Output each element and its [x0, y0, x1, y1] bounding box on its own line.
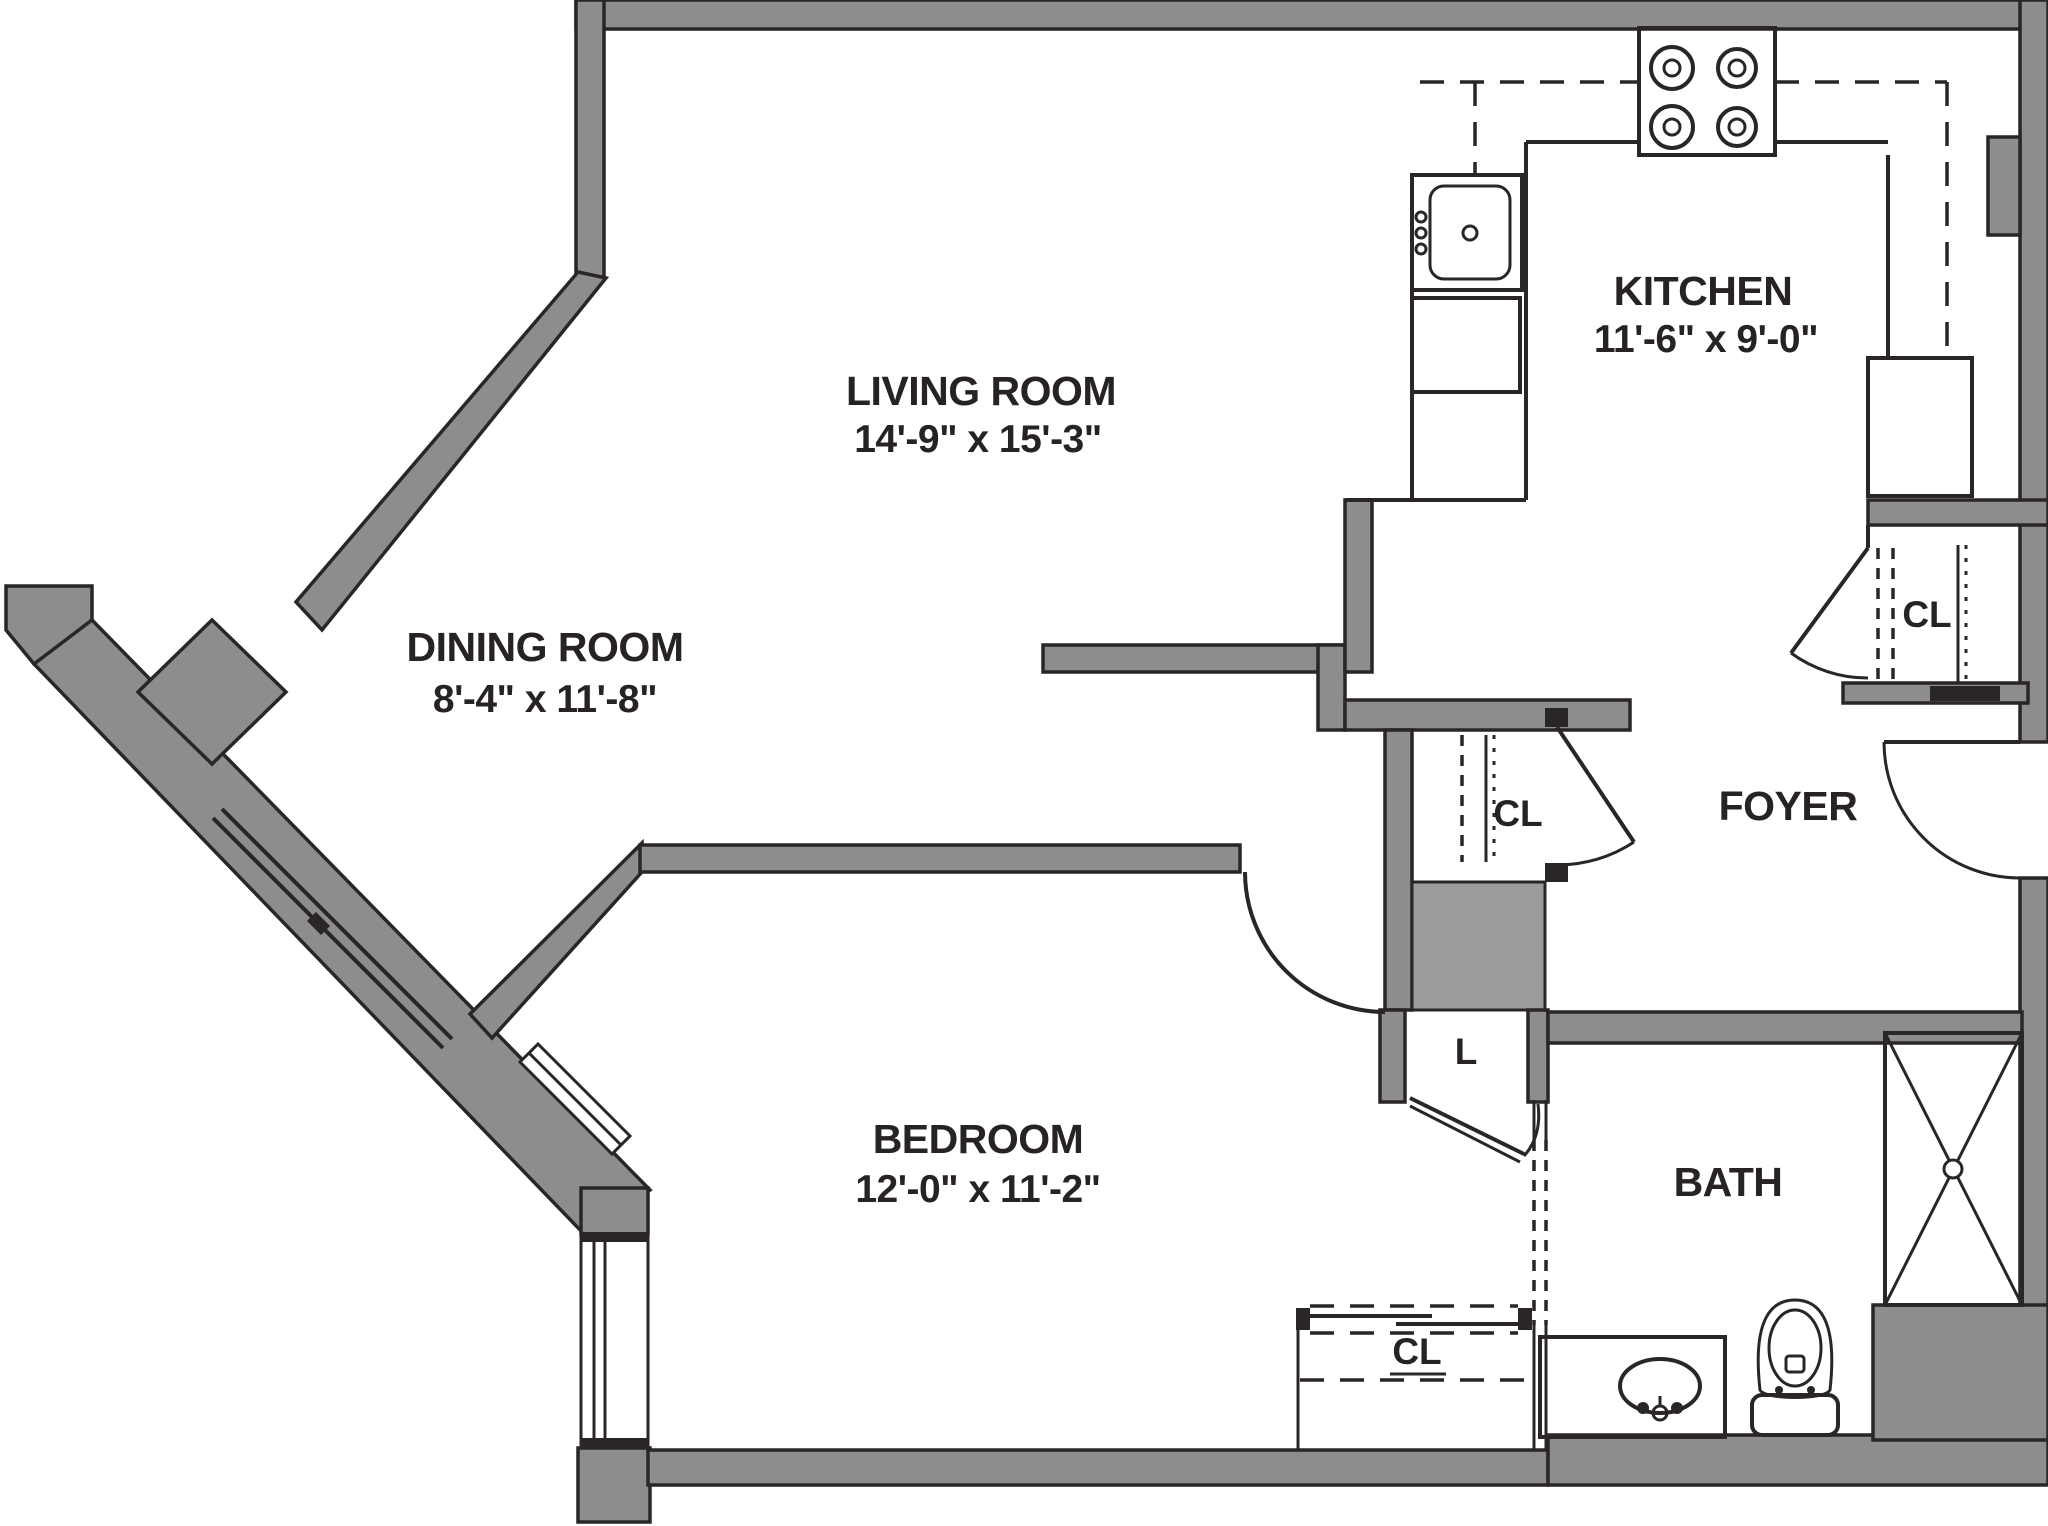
bedroom-door-arc — [1245, 872, 1385, 1012]
toilet-hinge — [1775, 1386, 1783, 1394]
linen-closet-door — [1410, 1106, 1520, 1162]
window-jamb-bottom — [581, 1438, 648, 1448]
wall-bottom-bedroom — [648, 1450, 1548, 1485]
burner-center — [1664, 119, 1680, 135]
wall-left-upper — [576, 0, 604, 278]
entry-door-arc — [1884, 742, 2020, 878]
kitchen-peninsula-wall — [1345, 500, 1372, 672]
hall-closet-label: CL — [1493, 793, 1542, 834]
toilet-hinge — [1807, 1386, 1815, 1394]
bedroom-label: BEDROOM — [873, 1116, 1084, 1162]
vanity — [1540, 1337, 1725, 1437]
faucet-handle — [1637, 1402, 1649, 1414]
toilet-tank — [1752, 1395, 1838, 1435]
living-room-dims: 14'-9" x 15'-3" — [854, 418, 1102, 461]
floor-plan-drawing: LIVING ROOM 14'-9" x 15'-3" DINING ROOM … — [0, 0, 2048, 1526]
hall-closet-jamb-top — [1545, 708, 1568, 727]
wall-bottom-bath — [1548, 1435, 2048, 1485]
burner — [1718, 49, 1756, 87]
hall-closet-door — [1557, 727, 1634, 842]
linen-closet-east-wall — [1528, 1010, 1548, 1102]
closet-jamb — [1518, 1308, 1532, 1330]
bedroom-sw-pier — [578, 1448, 650, 1522]
sliding-door-panel — [222, 809, 452, 1039]
bedroom-angled-wall — [470, 843, 642, 1038]
burner — [1718, 108, 1756, 146]
bath-corner-block — [1873, 1305, 2048, 1440]
refrigerator — [1868, 358, 1972, 496]
linen-closet-label: L — [1455, 1031, 1478, 1072]
toilet-flush — [1786, 1356, 1804, 1372]
kitchen-closet-north-wall — [1868, 500, 2048, 525]
wall-diagonal-upper — [296, 272, 606, 630]
linen-closet-west-wall — [1380, 1010, 1405, 1102]
burner-center — [1664, 60, 1680, 76]
wall-top — [576, 0, 2048, 29]
foyer-label: FOYER — [1719, 783, 1858, 829]
living-south-wall — [1043, 645, 1345, 672]
burner-center — [1729, 60, 1745, 76]
exterior-walls — [6, 0, 2048, 1522]
hall-closet-door-arc — [1557, 842, 1634, 865]
kitchen-dims: 11'-6" x 9'-0" — [1594, 318, 1818, 361]
burner — [1651, 106, 1693, 148]
wall-jog — [1318, 645, 1345, 730]
dishwasher — [1412, 298, 1520, 392]
kitchen-fixtures — [1345, 28, 1972, 500]
bedroom-west-wall-joint — [581, 1188, 648, 1234]
bedroom-closet-label: CL — [1392, 1331, 1441, 1372]
faucet-handle — [1671, 1402, 1683, 1414]
bath-label: BATH — [1674, 1159, 1783, 1205]
dining-room-label: DINING ROOM — [407, 624, 684, 670]
toilet-bowl-inner — [1769, 1310, 1821, 1386]
bedroom-dims: 12'-0" x 11'-2" — [855, 1168, 1100, 1211]
shower-drain — [1944, 1160, 1962, 1178]
mechanical-shaft — [1412, 882, 1545, 1010]
hall-closet-north-wall — [1345, 700, 1630, 730]
hall-closet-west-wall — [1385, 730, 1412, 1010]
linen-closet-door — [1410, 1098, 1524, 1154]
kitchen-closet-door — [1791, 548, 1868, 653]
wall-right-upper — [2020, 0, 2048, 742]
bedroom-north-wall — [640, 845, 1240, 872]
closet-jamb — [1296, 1308, 1310, 1330]
kitchen-label: KITCHEN — [1614, 268, 1793, 314]
dining-room-dims: 8'-4" x 11'-8" — [433, 678, 657, 721]
kitchen-pier — [1988, 137, 2020, 235]
floor-plan: LIVING ROOM 14'-9" x 15'-3" DINING ROOM … — [0, 0, 2048, 1526]
living-room-label: LIVING ROOM — [846, 368, 1116, 414]
wall-right-lower — [2020, 878, 2048, 1310]
burner — [1651, 47, 1693, 89]
sliding-door-track — [213, 818, 443, 1048]
window-jamb-top — [581, 1232, 648, 1242]
kitchen-closet-threshold — [1930, 686, 2000, 701]
kitchen-closet-door-arc — [1791, 653, 1868, 678]
burner-center — [1729, 119, 1745, 135]
bath-north-wall — [1548, 1012, 2022, 1043]
linen-closet-door-arc — [1524, 1104, 1539, 1156]
kitchen-closet-label: CL — [1902, 594, 1951, 635]
